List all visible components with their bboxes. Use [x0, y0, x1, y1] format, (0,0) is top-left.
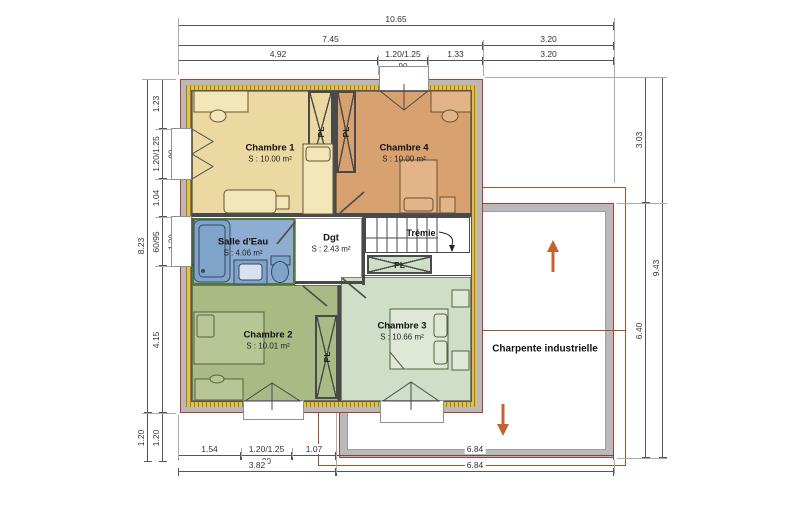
room-label-chambre1: Chambre 1S : 10.00 m²: [245, 143, 294, 164]
tremie-label: Trémie: [406, 228, 435, 238]
room-area: S : 10.00 m²: [379, 155, 428, 164]
room-label-salle-deau: Salle d'EauS : 4.06 m²: [218, 237, 268, 258]
room-name: Chambre 1: [245, 143, 294, 154]
room-name: Chambre 4: [379, 143, 428, 154]
room-area: S : 2.43 m²: [311, 245, 350, 254]
room-label-dgt: DgtS : 2.43 m²: [311, 233, 350, 254]
room-area: S : 10.00 m²: [245, 155, 294, 164]
floor-plan-canvas: Charpente industrielle 10.657.453.204.92…: [0, 0, 800, 516]
room-area: S : 10.01 m²: [243, 342, 292, 351]
room-label-chambre2: Chambre 2S : 10.01 m²: [243, 330, 292, 351]
room-area: S : 4.06 m²: [218, 249, 268, 258]
room-name: Salle d'Eau: [218, 237, 268, 248]
room-name: Chambre 3: [377, 321, 426, 332]
room-label-chambre4: Chambre 4S : 10.00 m²: [379, 143, 428, 164]
room-area: S : 10.66 m²: [377, 333, 426, 342]
room-name: Dgt: [311, 233, 350, 244]
room-name: Chambre 2: [243, 330, 292, 341]
room-label-chambre3: Chambre 3S : 10.66 m²: [377, 321, 426, 342]
